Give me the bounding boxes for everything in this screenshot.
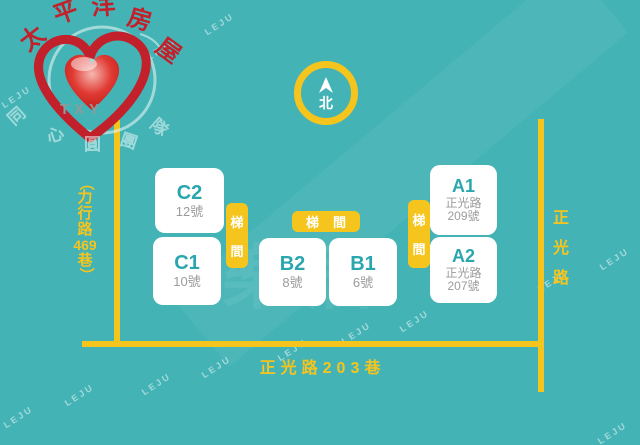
logo-team-char: 隊 (146, 114, 173, 141)
logo-team-char: 心 (44, 123, 66, 146)
watermark: LEJU (63, 382, 96, 408)
building-title: C2 (177, 182, 203, 205)
site-plan-canvas: 樂居 LEJU LEJU LEJU LEJU LEJU LEJU LEJU LE… (0, 0, 640, 445)
building-title: A2 (452, 246, 475, 267)
watermark: LEJU (2, 404, 35, 430)
building-a1: A1 正光路 209號 (430, 165, 497, 235)
watermark: LEJU (596, 420, 629, 445)
logo-brand-char: 洋 (90, 0, 116, 21)
logo-team-char: 同 (4, 103, 29, 128)
street-label-zhengguang-lane-203: 正光路203巷 (240, 354, 400, 378)
watermark: LEJU (200, 354, 233, 380)
building-b1: B1 6號 (329, 238, 397, 306)
logo-brand-char: 屋 (150, 34, 185, 69)
watermark: LEJU (598, 246, 631, 272)
watermark: LEJU (140, 371, 173, 397)
north-compass: 北 (294, 61, 358, 125)
logo-brand-char: 房 (124, 3, 155, 37)
building-number: 207號 (447, 280, 479, 294)
logo-team-char: 團 (118, 130, 140, 153)
building-number: 10號 (173, 275, 200, 290)
logo-team-char: 圓 (84, 135, 101, 154)
watermark: LEJU (398, 308, 431, 334)
stairwell-b: 梯間 (292, 211, 360, 232)
logo-txy-label: TXY (60, 101, 104, 118)
building-b2: B2 8號 (259, 238, 326, 306)
building-title: B2 (280, 253, 306, 276)
building-c1: C1 10號 (153, 237, 221, 305)
pacific-house-logo: 太 平 洋 房 屋 TXY 同 心 圓 團 隊 (2, 0, 212, 160)
stairwell-c: 梯 間 (226, 203, 248, 268)
heart-highlight (71, 57, 97, 71)
stairwell-a: 梯 間 (408, 200, 430, 268)
north-arrow-icon (317, 77, 335, 94)
building-c2: C2 12號 (155, 168, 224, 233)
building-a2: A2 正光路 207號 (430, 237, 497, 303)
road-line-bottom (82, 341, 544, 347)
building-number: 209號 (447, 210, 479, 224)
building-street: 正光路 (445, 267, 481, 281)
building-title: A1 (452, 176, 475, 197)
building-title: B1 (350, 253, 376, 276)
building-number: 12號 (176, 205, 203, 220)
north-label: 北 (319, 96, 333, 110)
logo-brand-char: 平 (50, 0, 81, 30)
street-label-lixing-road: （ 力 行 路 469 巷 ） (70, 177, 100, 281)
building-title: C1 (174, 252, 200, 275)
building-street: 正光路 (445, 197, 481, 211)
road-line-right (538, 119, 544, 392)
street-label-zhengguang-road: 正 光 路 (549, 204, 573, 288)
building-number: 8號 (282, 276, 302, 291)
building-number: 6號 (353, 276, 373, 291)
